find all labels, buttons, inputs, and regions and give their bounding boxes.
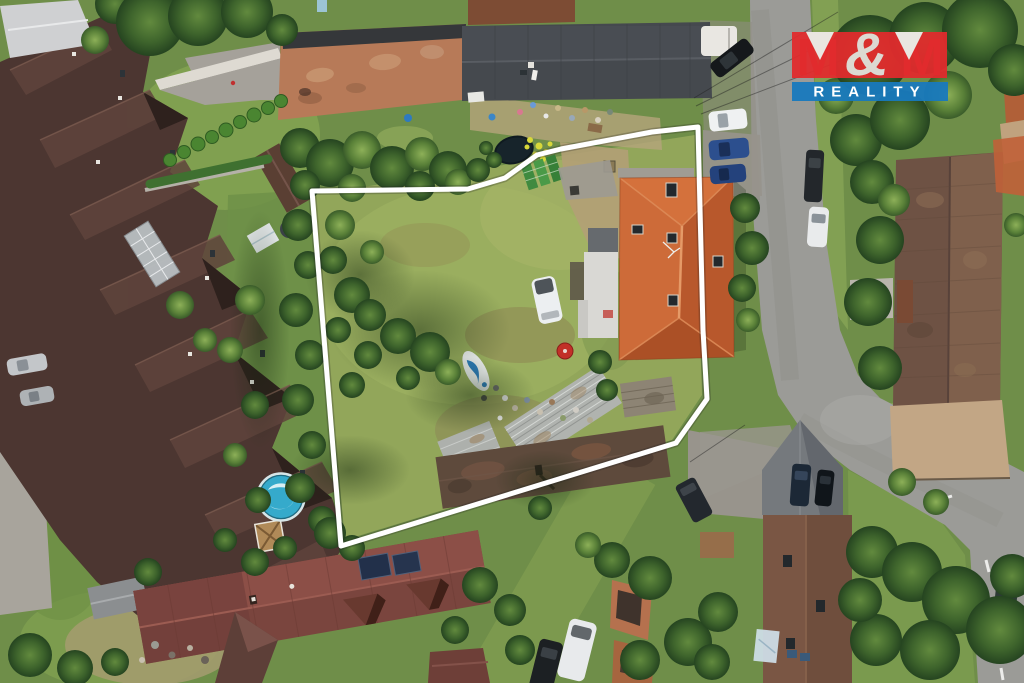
parked-blue-car-1: [708, 137, 750, 160]
parked-white-car: [708, 108, 748, 132]
road-white-car: [807, 206, 830, 247]
tarp: [753, 629, 779, 663]
bottom-edge-house: [428, 648, 490, 683]
mm-reality-logo: M M & REALITY: [792, 20, 948, 101]
road-dark-suv: [804, 150, 825, 203]
weathered-shed: [620, 377, 676, 418]
aerial-photo: M M & REALITY: [0, 0, 1024, 683]
logo-wordmark: REALITY: [813, 84, 926, 101]
main-house-orange-roof: [619, 177, 746, 360]
red-umbrella: [557, 343, 573, 359]
parked-blue-car-2: [709, 163, 746, 184]
